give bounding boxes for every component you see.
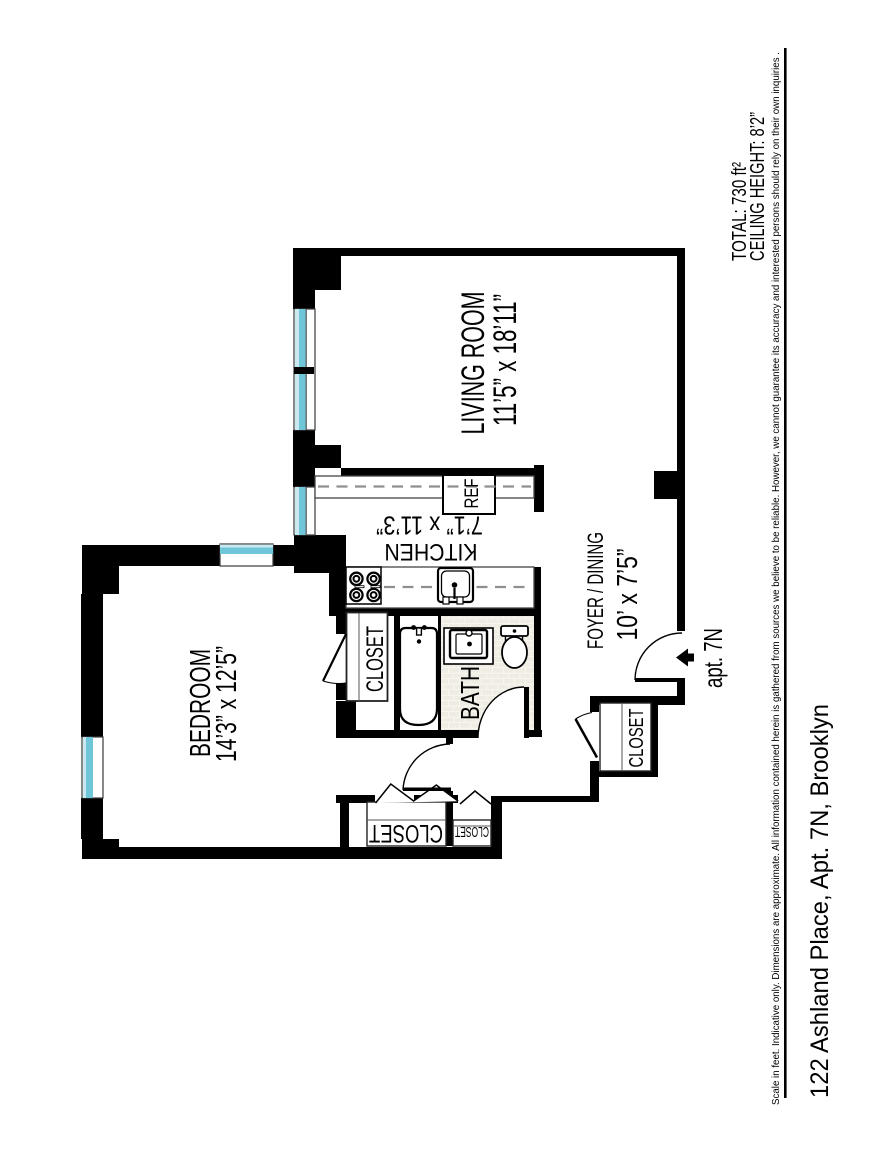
svg-text:KITCHEN: KITCHEN [385, 538, 478, 565]
svg-text:CEILING HEIGHT: 8’2”: CEILING HEIGHT: 8’2” [747, 112, 769, 261]
svg-text:BATH: BATH [455, 666, 485, 720]
svg-text:14’3” x 12’5”: 14’3” x 12’5” [211, 646, 243, 762]
svg-text:122 Ashland Place, Apt. 7N, Br: 122 Ashland Place, Apt. 7N, Brooklyn [806, 704, 834, 1098]
svg-text:CLOSET: CLOSET [362, 626, 389, 692]
svg-text:FOYER / DINING: FOYER / DINING [583, 532, 608, 649]
svg-text:7’1” x 11’3”: 7’1” x 11’3” [376, 511, 483, 541]
svg-text:REF: REF [461, 478, 483, 508]
svg-text:11’5” x 18’11”: 11’5” x 18’11” [487, 294, 523, 426]
svg-text:CLOSET: CLOSET [369, 819, 443, 847]
svg-text:CLOSET: CLOSET [626, 709, 648, 768]
svg-text:Scale in feet. Indicative only: Scale in feet. Indicative only. Dimensio… [770, 52, 782, 1105]
svg-text:apt. 7N: apt. 7N [698, 628, 728, 688]
svg-text:10’ x 7’5”: 10’ x 7’5” [612, 549, 644, 641]
svg-text:LIVING ROOM: LIVING ROOM [455, 292, 491, 435]
svg-text:CLOSET: CLOSET [455, 823, 489, 840]
